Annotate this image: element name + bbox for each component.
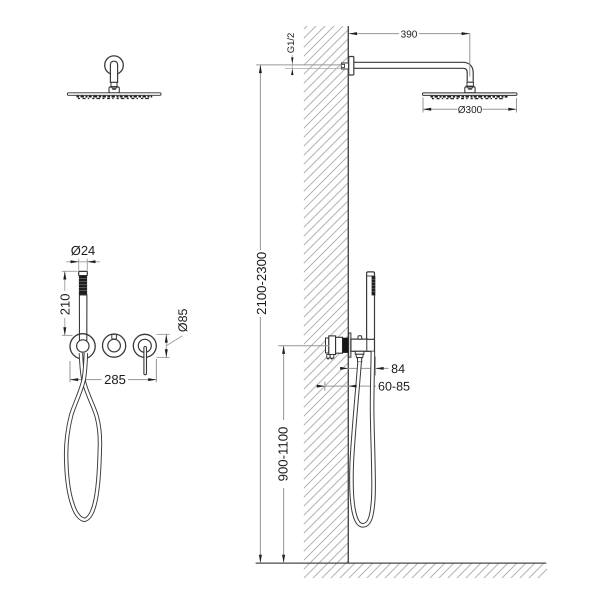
- svg-text:2100-2300: 2100-2300: [254, 252, 269, 315]
- svg-text:Ø85: Ø85: [176, 308, 190, 332]
- svg-text:285: 285: [104, 372, 126, 387]
- svg-text:Ø24: Ø24: [71, 243, 96, 258]
- svg-text:60-85: 60-85: [378, 380, 410, 394]
- svg-text:84: 84: [391, 362, 405, 376]
- svg-text:390: 390: [401, 29, 418, 40]
- svg-text:Ø300: Ø300: [458, 105, 483, 116]
- svg-text:210: 210: [57, 294, 72, 316]
- svg-text:900-1100: 900-1100: [276, 427, 291, 482]
- svg-text:G1/2: G1/2: [286, 33, 297, 54]
